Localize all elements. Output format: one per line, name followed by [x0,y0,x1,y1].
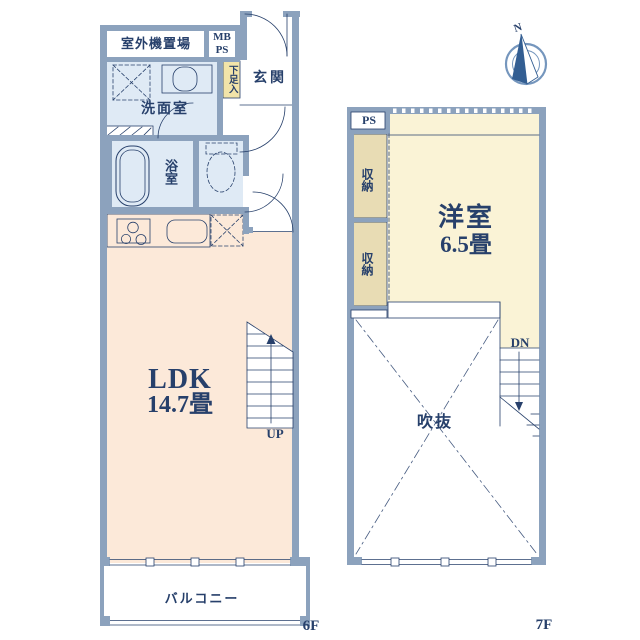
window-7f-bottom [362,558,531,566]
label-ldk-size: 14.7畳 [112,392,248,418]
toilet-floor [199,141,243,207]
label-outdoor-unit: 室外機置場 [104,33,208,53]
compass-icon [506,34,546,84]
label-stairs-down: DN [502,335,538,350]
label-balcony: バルコニー [142,590,262,606]
label-ldk: LDK [112,365,248,395]
floor-plan-drawing [0,0,640,640]
label-floor-7f: 7F [528,616,560,634]
label-closet-lower: 収納 [358,242,376,286]
label-shoe-cabinet: 下足入 [222,61,240,98]
shelf-icon [101,126,153,136]
toilet-door-arc [245,174,283,212]
stair-landing-rail [388,302,500,318]
entrance-door-arc [245,14,287,56]
label-western-room: 洋室 [396,204,536,232]
label-atrium: 吹抜 [400,414,470,432]
label-western-room-size: 6.5畳 [396,231,536,257]
label-washroom: 洗面室 [117,101,213,119]
railing-segment [351,310,387,318]
label-bathroom: 浴室 [162,153,179,190]
label-meter-box: MB [208,31,236,44]
ldk-door-arc [253,192,293,232]
label-pipe-shaft-7f: PS [352,112,386,128]
bathroom-floor [112,141,193,209]
label-stairs-up: UP [255,426,295,441]
label-floor-6f: 6F [295,617,327,635]
label-closet-upper: 収納 [358,158,376,202]
label-pipe-shaft-6f: PS [208,44,236,57]
floor-plan-page: 室外機置場 MB PS 玄関 下足入 洗面室 浴室 LDK 14.7畳 UP バ… [0,0,640,640]
label-entrance: 玄関 [244,70,296,87]
